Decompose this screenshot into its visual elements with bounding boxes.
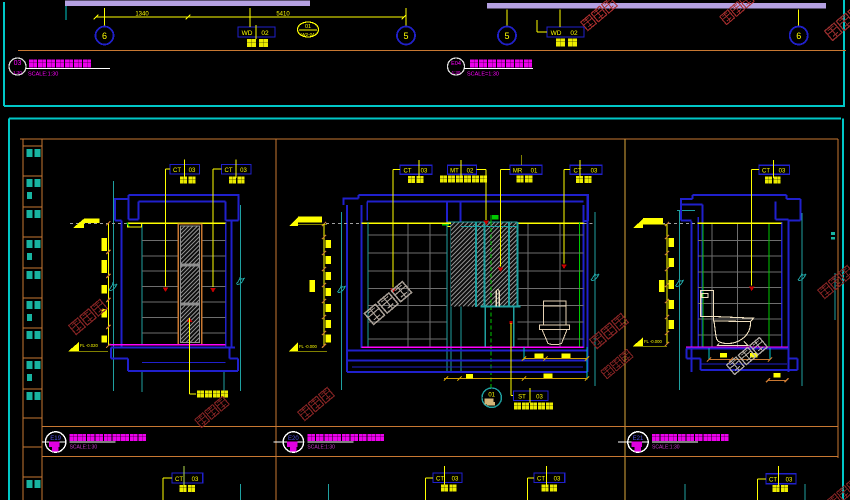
svg-text:E19: E19 — [50, 436, 61, 442]
svg-text:5: 5 — [403, 31, 408, 41]
svg-text:03: 03 — [591, 169, 598, 175]
svg-text:W2-04: W2-04 — [301, 32, 315, 37]
svg-text:CT: CT — [175, 477, 183, 483]
svg-text:5410: 5410 — [276, 12, 290, 18]
svg-text:SCALE:1:30: SCALE:1:30 — [307, 445, 335, 451]
svg-text:WD: WD — [242, 30, 253, 37]
svg-text:1:30: 1:30 — [13, 70, 22, 75]
svg-text:6: 6 — [796, 31, 801, 41]
svg-text:SCALE:1:30: SCALE:1:30 — [70, 445, 98, 451]
svg-text:E04: E04 — [451, 61, 461, 67]
svg-text:WD: WD — [551, 30, 562, 37]
svg-text:FL -0.020: FL -0.020 — [80, 343, 98, 348]
svg-text:03: 03 — [536, 395, 543, 401]
svg-text:SCALE:1:30: SCALE:1:30 — [28, 72, 58, 78]
svg-text:5: 5 — [504, 31, 509, 41]
svg-text:02: 02 — [467, 169, 474, 175]
svg-text:01: 01 — [531, 169, 538, 175]
svg-text:ST: ST — [518, 395, 526, 401]
svg-text:03: 03 — [240, 168, 247, 174]
svg-text:FL -0.000: FL -0.000 — [299, 344, 317, 349]
svg-text:03: 03 — [14, 60, 22, 67]
svg-text:01: 01 — [305, 24, 311, 30]
svg-text:02: 02 — [570, 30, 578, 37]
svg-text:02: 02 — [261, 30, 269, 37]
svg-text:FL -0.000: FL -0.000 — [644, 339, 662, 344]
svg-text:CT: CT — [574, 169, 582, 175]
svg-text:03: 03 — [779, 169, 786, 175]
svg-text:E21: E21 — [633, 436, 644, 442]
svg-text:03: 03 — [786, 478, 793, 484]
svg-text:CT: CT — [173, 168, 181, 174]
svg-text:6: 6 — [102, 31, 107, 41]
svg-text:03: 03 — [554, 477, 561, 483]
svg-text:03: 03 — [189, 168, 196, 174]
svg-text:CT: CT — [225, 168, 233, 174]
svg-text:CT: CT — [404, 169, 412, 175]
svg-text:1:30: 1:30 — [452, 70, 461, 75]
svg-text:MR: MR — [513, 169, 523, 175]
svg-text:CT: CT — [762, 169, 770, 175]
svg-text:SCALE:1:30: SCALE:1:30 — [652, 445, 680, 451]
svg-text:03: 03 — [421, 169, 428, 175]
svg-text:01: 01 — [488, 393, 495, 399]
svg-text:CT: CT — [769, 478, 777, 484]
svg-text:SCALE=1:30: SCALE=1:30 — [467, 72, 499, 78]
svg-text:MT: MT — [450, 169, 459, 175]
svg-text:1340: 1340 — [135, 12, 149, 18]
svg-text:E20: E20 — [288, 436, 299, 442]
svg-text:03: 03 — [452, 477, 459, 483]
svg-text:CT: CT — [436, 477, 444, 483]
svg-text:03: 03 — [192, 477, 199, 483]
svg-text:CT: CT — [537, 477, 545, 483]
